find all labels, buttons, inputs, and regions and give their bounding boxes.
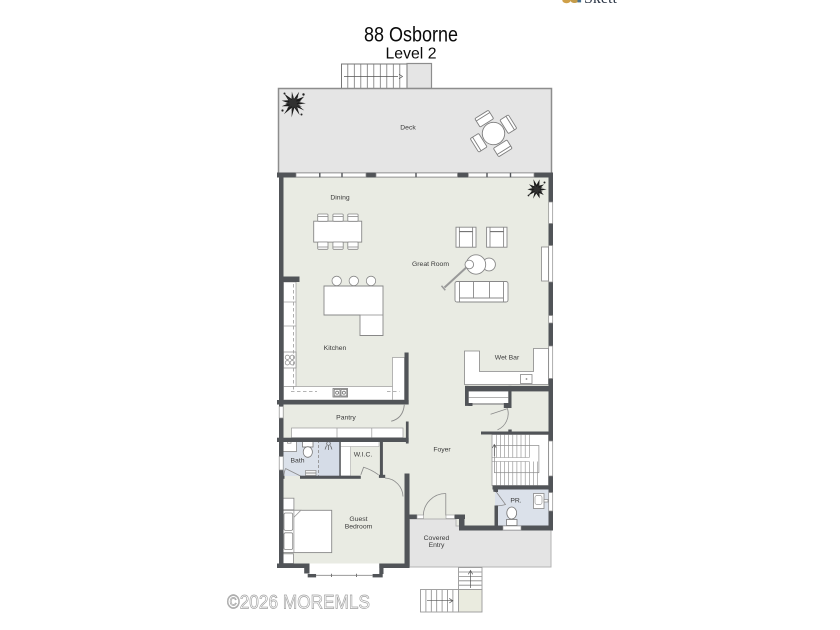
svg-text:Pantry: Pantry (336, 415, 356, 422)
svg-text:Dining: Dining (330, 194, 349, 201)
svg-text:Guest: Guest (349, 516, 367, 523)
svg-text:Entry: Entry (429, 542, 445, 549)
svg-text:Bath: Bath (291, 458, 305, 465)
svg-text:Deck: Deck (400, 125, 416, 132)
svg-text:Skett: Skett (584, 0, 617, 7)
svg-text:Wet Bar: Wet Bar (495, 355, 520, 362)
svg-text:Level 2: Level 2 (386, 45, 437, 62)
svg-text:Foyer: Foyer (433, 447, 451, 454)
svg-text:Kitchen: Kitchen (324, 345, 347, 352)
svg-text:©2026 MOREMLS: ©2026 MOREMLS (227, 593, 370, 614)
svg-text:Bedroom: Bedroom (345, 524, 373, 531)
svg-text:PR.: PR. (510, 498, 521, 505)
svg-text:88 Osborne: 88 Osborne (364, 24, 458, 47)
svg-text:W.I.C.: W.I.C. (354, 452, 373, 459)
svg-text:Great Room: Great Room (412, 261, 449, 268)
